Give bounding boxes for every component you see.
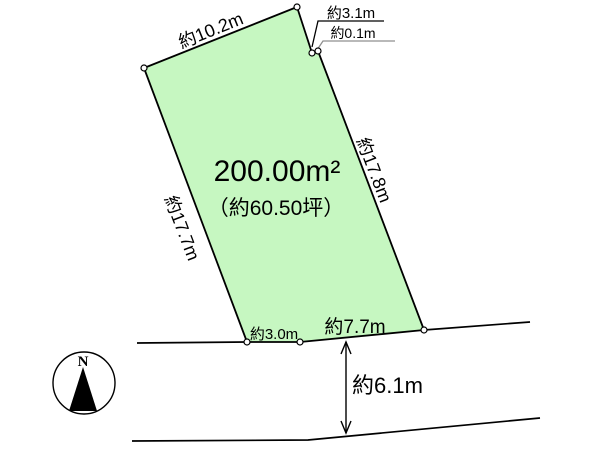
label-upper-right-dimension: 約3.1m: [327, 5, 375, 22]
road-upper-line-right: [424, 322, 530, 330]
land-plot-diagram: 約10.2m 約3.1m 約0.1m 約17.8m 約17.7m 約3.0m 約…: [0, 0, 600, 450]
leader-line-0-1m: [317, 41, 395, 50]
label-bottom-left-dimension: 約3.0m: [250, 326, 298, 343]
label-plot-area-tsubo: （約60.50坪）: [208, 197, 345, 220]
vertex-marker-upper-right-b: [315, 48, 321, 54]
vertex-marker-upper-right-a: [309, 50, 315, 56]
label-road-width-dimension: 約6.1m: [352, 373, 423, 398]
vertex-marker-top-left: [141, 65, 147, 71]
road-upper-line-left: [137, 342, 247, 343]
label-plot-area-sqm: 200.00m²: [214, 155, 341, 188]
diagram-svg: 約10.2m 約3.1m 約0.1m 約17.8m 約17.7m 約3.0m 約…: [0, 0, 600, 450]
vertex-marker-top: [294, 4, 300, 10]
vertex-marker-bottom-right: [421, 327, 427, 333]
label-bottom-right-dimension: 約7.7m: [324, 316, 385, 338]
compass-north-label: N: [78, 354, 89, 370]
label-upper-right-offset-dimension: 約0.1m: [330, 25, 375, 41]
road-lower-line: [132, 418, 540, 441]
